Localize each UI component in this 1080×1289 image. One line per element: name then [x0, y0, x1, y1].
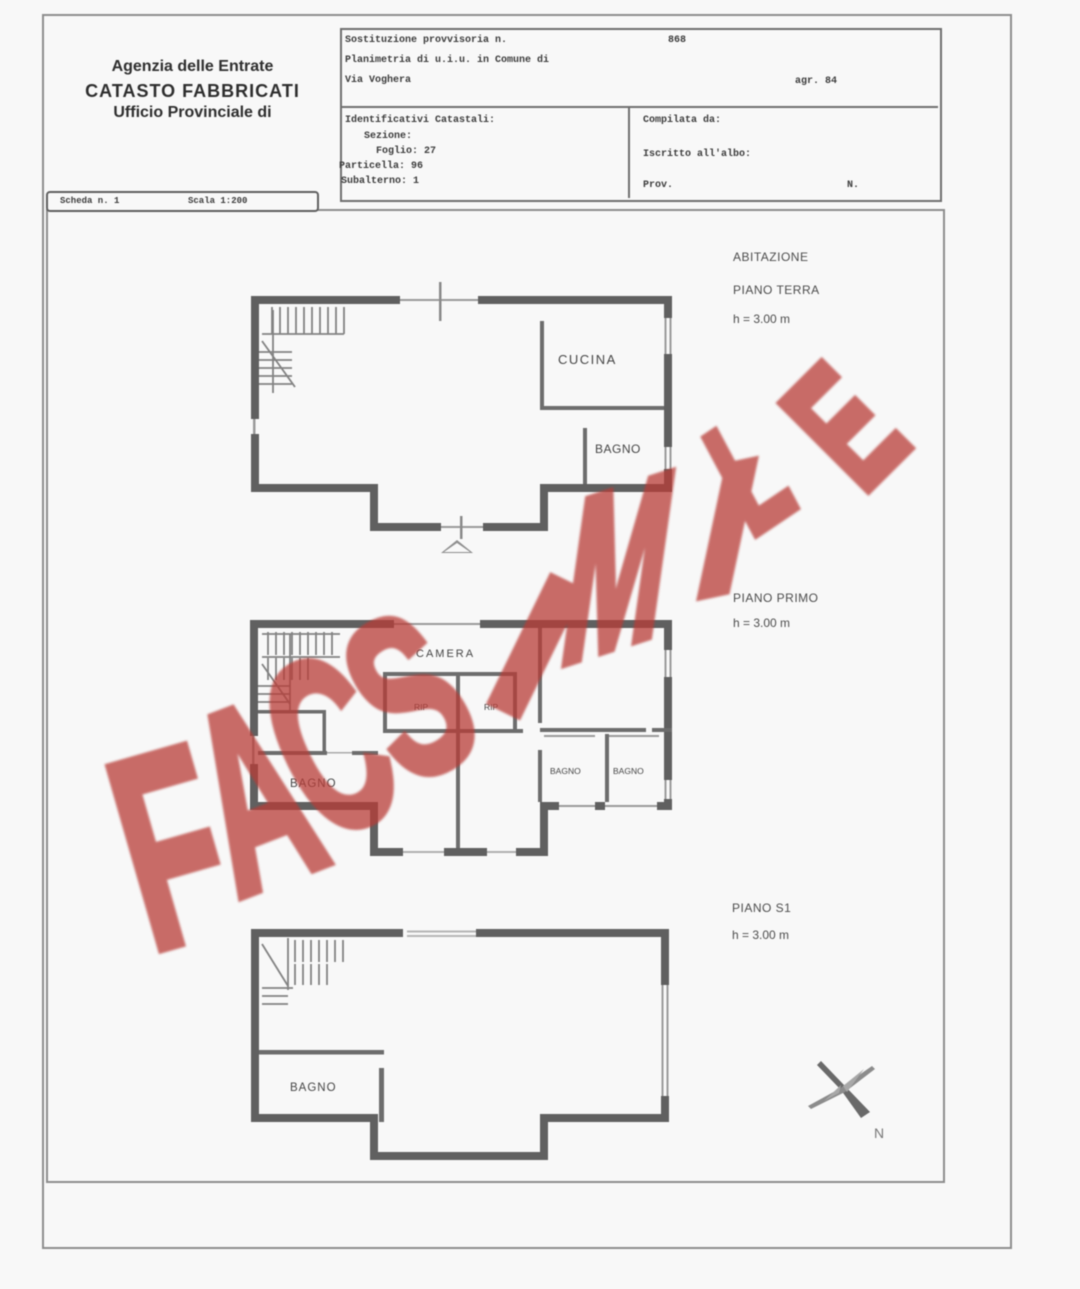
svg-text:M: M — [549, 418, 688, 716]
